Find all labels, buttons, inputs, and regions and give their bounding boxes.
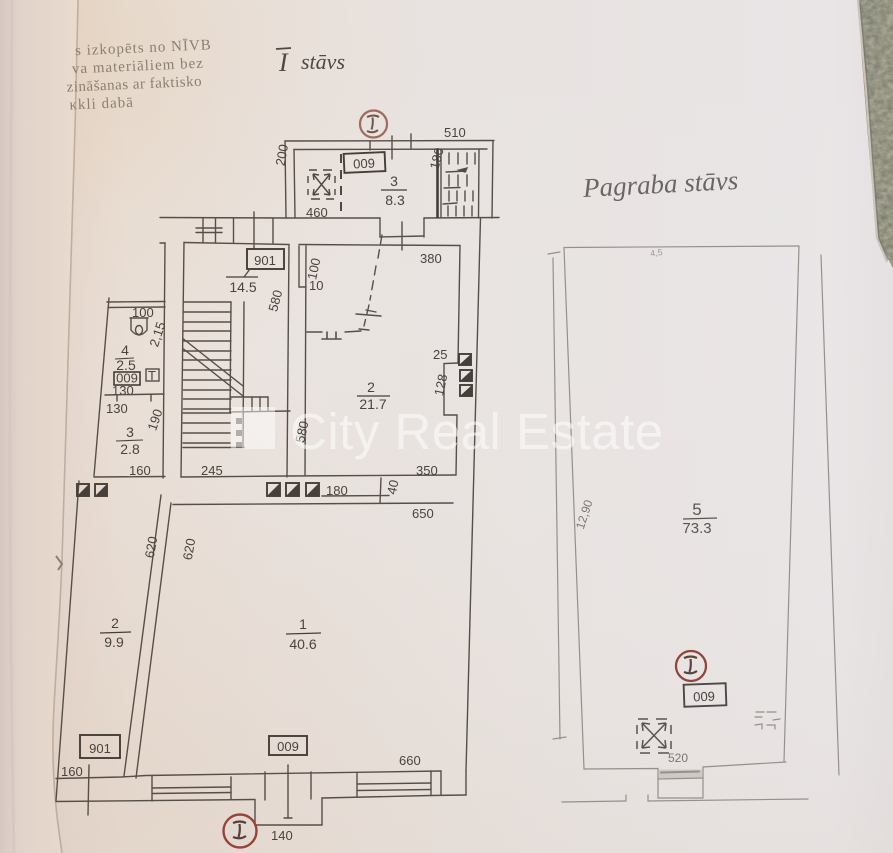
svg-text:25: 25 xyxy=(433,347,447,362)
svg-text:I: I xyxy=(278,48,289,77)
svg-text:2: 2 xyxy=(111,615,119,631)
svg-text:3: 3 xyxy=(390,173,398,189)
svg-text:140: 140 xyxy=(271,828,293,843)
svg-text:2: 2 xyxy=(367,379,375,395)
svg-text:510: 510 xyxy=(444,125,466,140)
svg-text:009: 009 xyxy=(693,689,715,705)
svg-text:901: 901 xyxy=(89,741,111,756)
svg-text:73.3: 73.3 xyxy=(682,520,711,537)
svg-text:T: T xyxy=(148,368,156,383)
svg-text:40: 40 xyxy=(384,478,402,495)
svg-text:660: 660 xyxy=(399,753,421,768)
svg-text:ĸkli dabā: ĸkli dabā xyxy=(69,95,134,114)
svg-text:130: 130 xyxy=(112,383,134,398)
svg-text:stāvs: stāvs xyxy=(301,49,345,74)
svg-text:160: 160 xyxy=(61,764,83,779)
svg-text:40.6: 40.6 xyxy=(289,636,316,652)
svg-text:2.8: 2.8 xyxy=(120,441,140,457)
svg-text:8.3: 8.3 xyxy=(385,192,405,208)
svg-text:901: 901 xyxy=(254,253,276,268)
svg-text:009: 009 xyxy=(353,156,375,172)
svg-text:100: 100 xyxy=(132,305,154,320)
svg-text:009: 009 xyxy=(277,739,299,754)
svg-text:160: 160 xyxy=(129,463,151,478)
svg-text:245: 245 xyxy=(201,463,223,478)
svg-text:4,5: 4,5 xyxy=(649,247,663,259)
svg-text:350: 350 xyxy=(416,463,438,478)
svg-text:14.5: 14.5 xyxy=(229,279,256,295)
svg-text:1: 1 xyxy=(299,616,307,632)
svg-text:5: 5 xyxy=(692,500,701,519)
svg-text:130: 130 xyxy=(106,401,128,416)
svg-text:520: 520 xyxy=(668,751,688,765)
svg-text:380: 380 xyxy=(420,251,442,266)
svg-text:4: 4 xyxy=(121,342,129,358)
svg-text:10: 10 xyxy=(309,278,323,293)
svg-text:3: 3 xyxy=(126,424,134,440)
svg-text:460: 460 xyxy=(306,205,328,220)
svg-text:650: 650 xyxy=(412,506,434,521)
svg-text:City Real Estate: City Real Estate xyxy=(290,403,664,460)
svg-text:9.9: 9.9 xyxy=(104,634,124,650)
